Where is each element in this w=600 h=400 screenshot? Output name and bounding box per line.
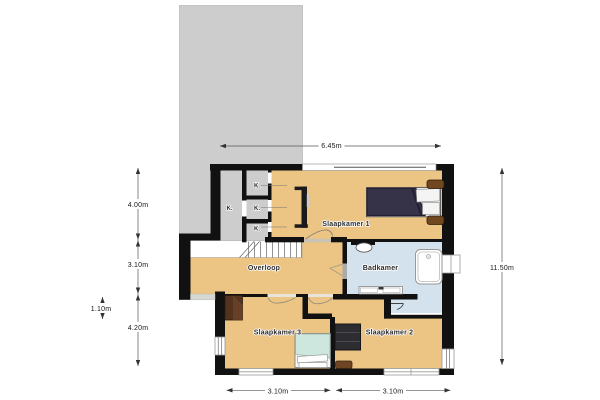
svg-text:6.45m: 6.45m — [321, 143, 341, 150]
svg-text:4.00m: 4.00m — [128, 202, 148, 209]
svg-text:Overloop: Overloop — [248, 265, 280, 272]
svg-text:K.: K. — [254, 227, 260, 233]
svg-text:Badkamer: Badkamer — [363, 265, 399, 272]
svg-text:K.: K. — [227, 206, 233, 212]
svg-text:3.10m: 3.10m — [268, 388, 288, 395]
svg-text:Slaapkamer 2: Slaapkamer 2 — [366, 330, 414, 337]
svg-text:11.50m: 11.50m — [490, 265, 514, 272]
svg-text:3.10m: 3.10m — [383, 388, 403, 395]
svg-text:4.20m: 4.20m — [128, 325, 148, 332]
svg-text:K.: K. — [254, 206, 260, 212]
svg-text:Slaapkamer 3: Slaapkamer 3 — [254, 330, 302, 337]
svg-text:3.10m: 3.10m — [128, 262, 148, 269]
svg-text:K.: K. — [254, 184, 260, 190]
svg-text:1.10m: 1.10m — [91, 306, 111, 313]
svg-text:Slaapkamer 1: Slaapkamer 1 — [322, 221, 370, 228]
